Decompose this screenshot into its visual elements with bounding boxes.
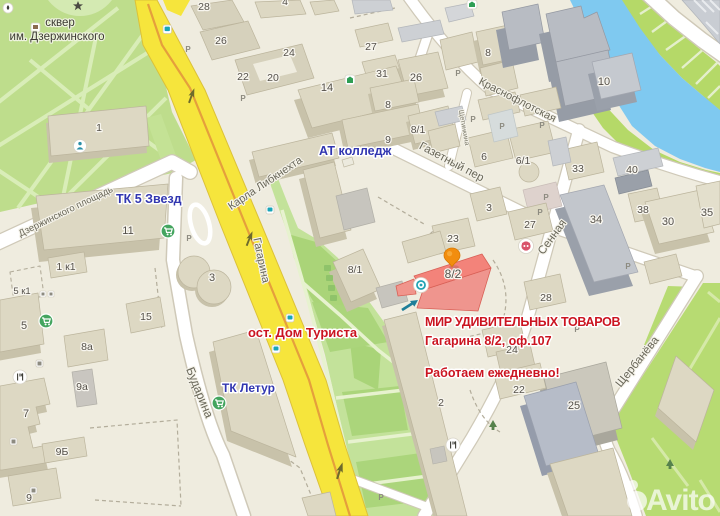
svg-text:8/1: 8/1 xyxy=(348,264,363,276)
svg-text:34: 34 xyxy=(590,214,602,226)
svg-text:15: 15 xyxy=(140,311,152,323)
svg-text:P: P xyxy=(537,208,543,217)
svg-text:30: 30 xyxy=(662,216,674,228)
svg-text:26: 26 xyxy=(215,35,227,47)
svg-text:22: 22 xyxy=(237,71,249,83)
svg-text:23: 23 xyxy=(447,233,459,245)
svg-text:ост. Дом Туриста: ост. Дом Туриста xyxy=(248,325,358,340)
svg-text:3: 3 xyxy=(209,272,215,284)
svg-text:6: 6 xyxy=(481,151,487,163)
svg-text:P: P xyxy=(186,234,192,243)
svg-text:Гагарина 8/2, оф.107: Гагарина 8/2, оф.107 xyxy=(425,334,552,348)
svg-text:5 к1: 5 к1 xyxy=(13,286,30,297)
svg-text:25: 25 xyxy=(568,400,580,412)
svg-text:ТК 5 Звезд: ТК 5 Звезд xyxy=(116,192,182,206)
svg-text:6/1: 6/1 xyxy=(516,155,531,167)
svg-text:28: 28 xyxy=(198,1,210,13)
svg-text:P: P xyxy=(455,69,461,78)
svg-text:27: 27 xyxy=(365,41,377,53)
svg-text:МИР УДИВИТЕЛЬНЫХ ТОВАРОВ: МИР УДИВИТЕЛЬНЫХ ТОВАРОВ xyxy=(425,315,621,329)
svg-text:8: 8 xyxy=(385,99,391,111)
svg-text:ТК Летур: ТК Летур xyxy=(222,381,275,395)
svg-text:26: 26 xyxy=(410,72,422,84)
svg-text:7: 7 xyxy=(23,408,29,420)
svg-text:40: 40 xyxy=(626,164,638,176)
svg-text:P: P xyxy=(378,493,384,502)
svg-text:8а: 8а xyxy=(81,341,93,353)
svg-text:им. Дзержинского: им. Дзержинского xyxy=(10,31,105,43)
svg-text:2: 2 xyxy=(438,397,444,409)
svg-text:27: 27 xyxy=(524,219,536,231)
svg-text:P: P xyxy=(499,122,505,131)
svg-text:38: 38 xyxy=(637,204,649,216)
svg-text:9а: 9а xyxy=(76,381,88,393)
svg-text:20: 20 xyxy=(267,72,279,84)
svg-text:P: P xyxy=(543,193,549,202)
svg-text:11: 11 xyxy=(122,225,133,237)
svg-text:Avito: Avito xyxy=(646,484,716,516)
svg-text:14: 14 xyxy=(321,82,333,94)
svg-text:31: 31 xyxy=(376,68,388,80)
svg-text:35: 35 xyxy=(701,207,713,219)
svg-text:33: 33 xyxy=(572,163,584,175)
svg-text:28: 28 xyxy=(540,292,552,304)
svg-text:Работаем ежедневно!: Работаем ежедневно! xyxy=(425,366,560,380)
svg-text:9Б: 9Б xyxy=(56,446,69,458)
svg-text:9: 9 xyxy=(26,492,32,504)
svg-text:P: P xyxy=(240,94,246,103)
svg-text:P: P xyxy=(470,115,476,124)
svg-text:24: 24 xyxy=(283,47,295,59)
svg-text:1: 1 xyxy=(96,122,102,134)
svg-text:P: P xyxy=(185,45,191,54)
svg-text:1 к1: 1 к1 xyxy=(56,261,75,273)
svg-text:8: 8 xyxy=(485,47,491,59)
svg-text:5: 5 xyxy=(21,320,27,332)
svg-text:АТ колледж: АТ колледж xyxy=(319,144,392,158)
svg-text:4: 4 xyxy=(282,0,288,8)
svg-text:8/2: 8/2 xyxy=(445,267,462,281)
svg-text:8/1: 8/1 xyxy=(411,124,426,136)
svg-text:10: 10 xyxy=(598,76,610,88)
svg-text:сквер: сквер xyxy=(45,17,75,29)
svg-text:22: 22 xyxy=(513,384,525,396)
svg-text:3: 3 xyxy=(486,202,492,214)
svg-text:P: P xyxy=(625,262,631,271)
svg-text:P: P xyxy=(539,121,545,130)
